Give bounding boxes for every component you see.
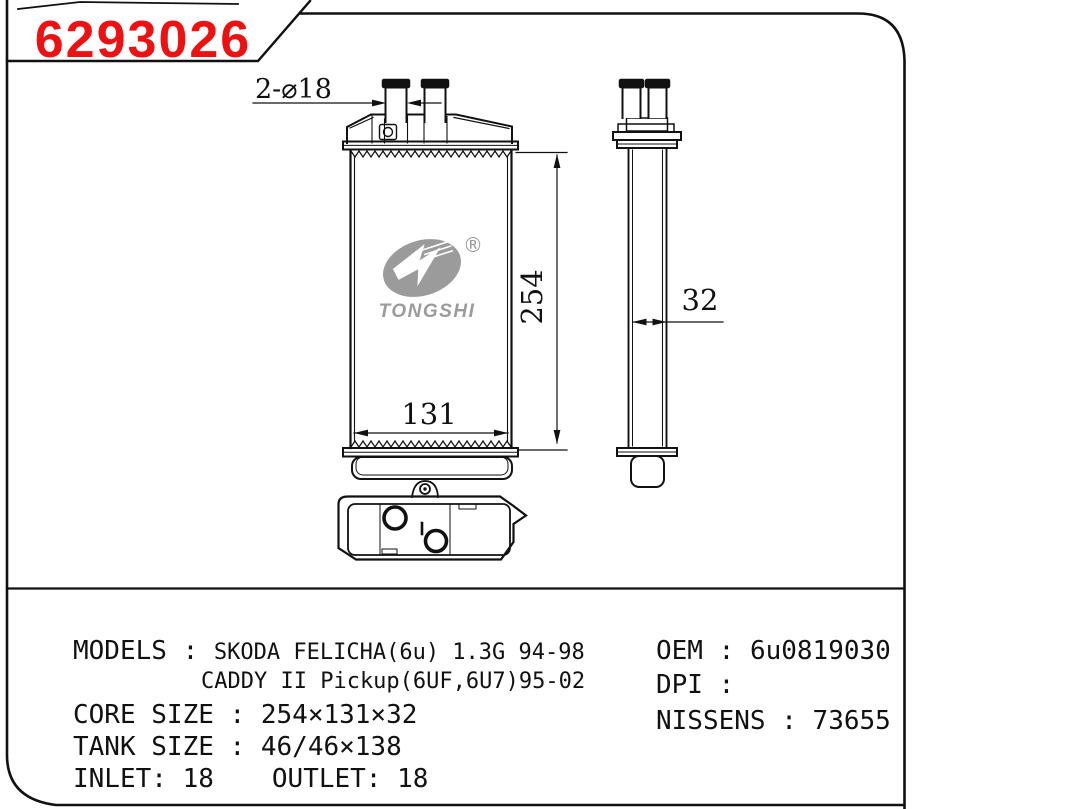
spec-panel: MODELS : SKODA FELICHA(6u) 1.3G 94-98 CA… (0, 0, 1071, 809)
outlet-label: OUTLET: (272, 764, 382, 794)
inlet-value: 18 (183, 764, 214, 794)
nissens-line: NISSENS : 73655 (640, 688, 891, 754)
inlet-label: INLET: (73, 764, 167, 794)
outlet-value: 18 (397, 764, 428, 794)
nissens-label: NISSENS (656, 706, 766, 736)
nissens-value: 73655 (813, 706, 891, 736)
inlet-outlet-line: INLET: 18OUTLET: 18 (57, 746, 428, 809)
drawing-sheet: 6293026 (0, 0, 1071, 809)
models-label: MODELS (73, 636, 167, 666)
nissens-separator: : (766, 706, 813, 736)
oem-value: 6u0819030 (750, 636, 891, 666)
